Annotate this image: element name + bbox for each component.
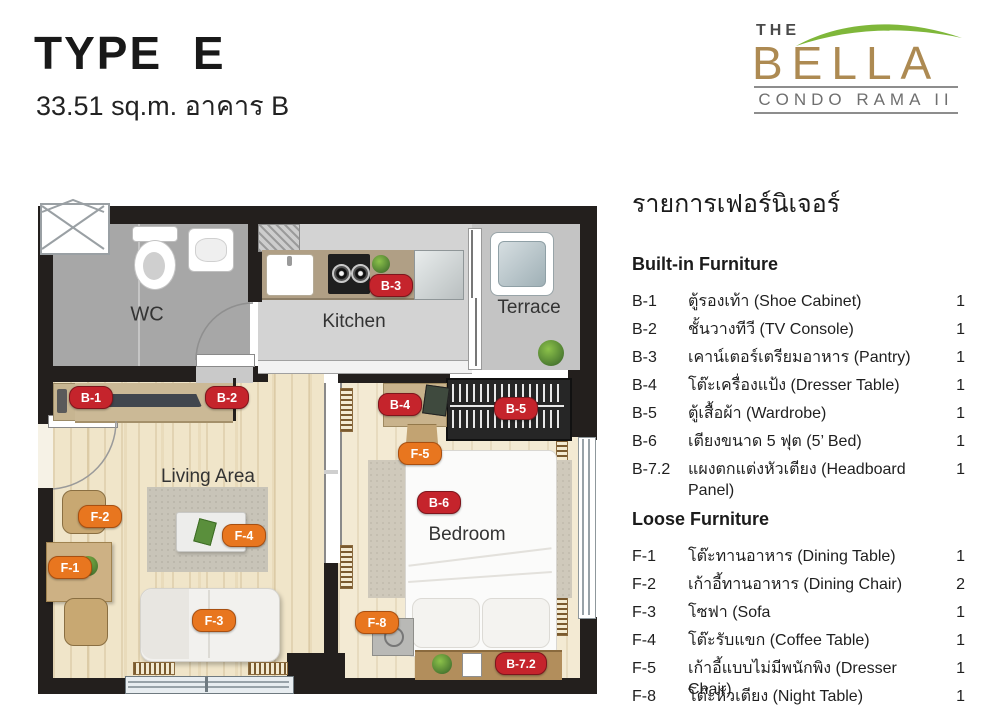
badge-b4: B-4: [378, 393, 422, 416]
room-label-terrace: Terrace: [497, 297, 560, 319]
badge-b72: B-7.2: [495, 652, 547, 675]
badge-f4: F-4: [222, 524, 266, 547]
entrance-door-swing-arc: [53, 421, 116, 489]
room-label-kitchen: Kitchen: [322, 311, 385, 333]
room-label-bedroom: Bedroom: [428, 524, 505, 546]
badge-f1: F-1: [48, 556, 92, 579]
badge-b2: B-2: [205, 386, 249, 409]
wc-door-swing-arc: [196, 303, 253, 360]
badge-b6: B-6: [417, 491, 461, 514]
badge-f3: F-3: [192, 609, 236, 632]
shaft-gable-lines: [42, 200, 104, 212]
badge-b3: B-3: [369, 274, 413, 297]
room-label-wc: WC: [130, 304, 163, 327]
room-label-living: Living Area: [161, 466, 255, 488]
floor-plan: WC Kitchen Terrace Living Area Bedroom B…: [0, 0, 1000, 718]
badge-f5: F-5: [398, 442, 442, 465]
badge-f2: F-2: [78, 505, 122, 528]
badge-b1: B-1: [69, 386, 113, 409]
plan-line-overlay: [0, 0, 1000, 718]
page: TYPE E 33.51 sq.m. อาคาร B THE BELLA CON…: [0, 0, 1000, 718]
badge-f8: F-8: [355, 611, 399, 634]
badge-b5: B-5: [494, 397, 538, 420]
